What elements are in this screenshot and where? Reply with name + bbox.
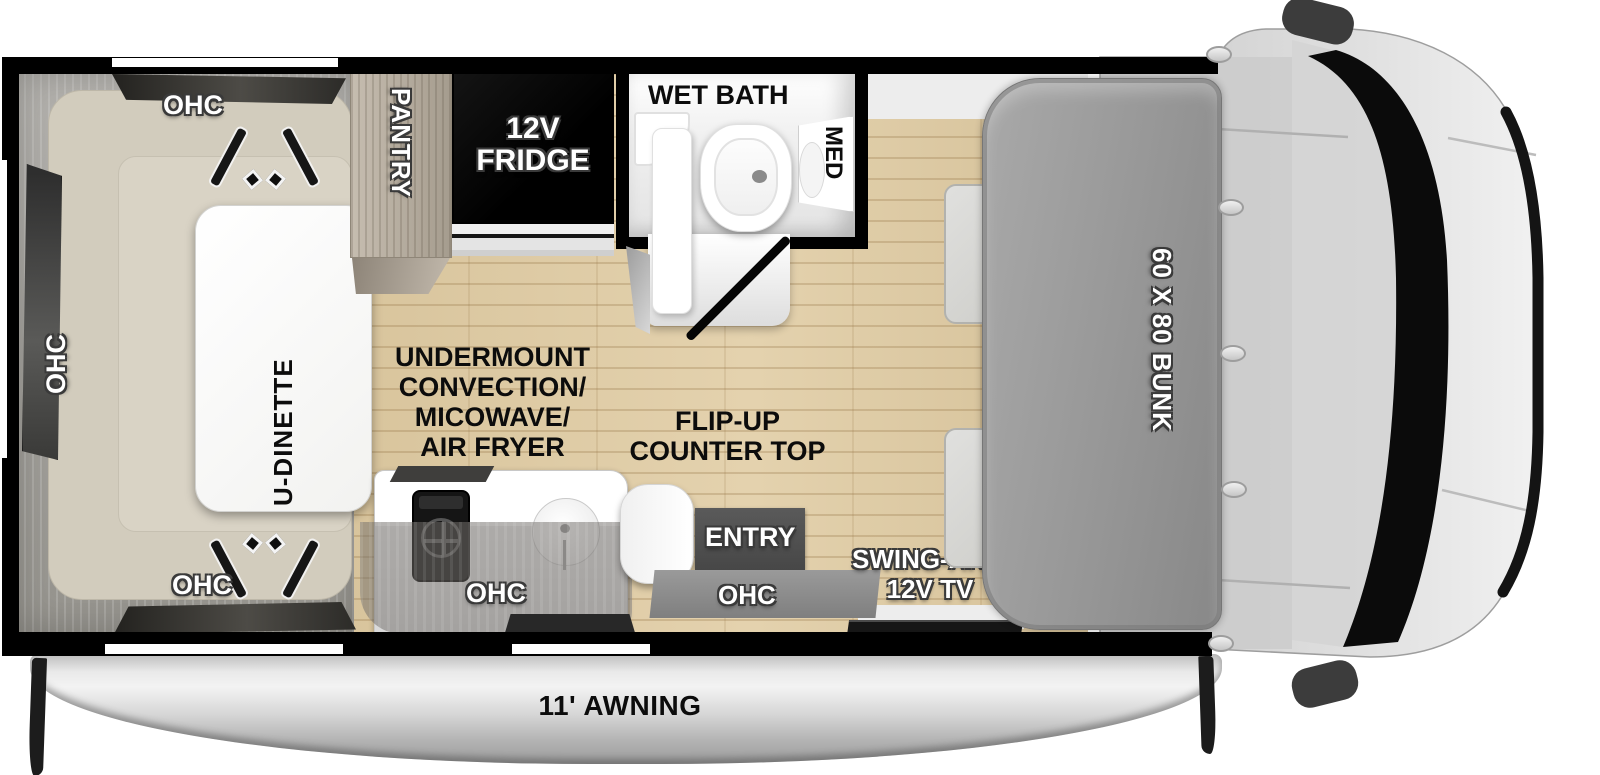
- ohc-label-kitchen: OHC: [466, 578, 526, 609]
- flip-up-label-line1: FLIP-UP: [600, 406, 855, 437]
- hinge-knob-icon: [1206, 46, 1232, 63]
- rv-floorplan: 11' AWNING U-DINETTE OHC: [0, 0, 1600, 775]
- shower-door-panel: [652, 128, 692, 314]
- bath-wall-bottom-right: [788, 235, 868, 249]
- dinette-ohc-shade-top: [112, 74, 346, 104]
- bath-wall-right: [855, 57, 868, 249]
- wall-top-window: [112, 58, 338, 67]
- bunk-label: 60 X 80 BUNK: [1146, 248, 1177, 432]
- ohc-label-top: OHC: [163, 90, 223, 121]
- wall-bottom-window-left: [105, 644, 343, 654]
- flip-up-counter: [620, 484, 694, 584]
- ohc-label-left: OHC: [41, 334, 72, 394]
- appliance-label-line4: AIR FRYER: [350, 432, 635, 463]
- side-mirror-bottom-icon: [1288, 657, 1362, 712]
- entry-label: ENTRY: [705, 522, 796, 553]
- ohc-label-entry: OHC: [718, 580, 776, 611]
- wall-bottom-window-right: [512, 644, 650, 654]
- flip-up-label-line2: COUNTER TOP: [600, 436, 855, 467]
- dinette-table-label: U-DINETTE: [268, 358, 299, 506]
- awning-end-cap-left: [28, 658, 47, 775]
- ohc-label-bottom: OHC: [172, 570, 232, 601]
- bunk: [982, 78, 1222, 630]
- awning-label: 11' AWNING: [480, 690, 760, 722]
- fridge-shelf: [452, 224, 614, 256]
- appliance-label-line3: MICOWAVE/: [350, 402, 635, 433]
- hinge-knob-icon: [1218, 199, 1244, 216]
- appliance-label-line1: UNDERMOUNT: [350, 342, 635, 373]
- hinge-knob-icon: [1208, 635, 1234, 652]
- hinge-knob-icon: [1221, 481, 1247, 498]
- bath-wall-left: [616, 57, 629, 249]
- fridge-label-line2: FRIDGE: [452, 144, 614, 178]
- dinette-window: [22, 164, 62, 460]
- dinette-ohc-shade-bottom: [114, 602, 356, 634]
- cooktop-grate: [419, 496, 463, 509]
- toilet-flush-icon: [752, 170, 767, 183]
- bath-title: WET BATH: [648, 80, 788, 111]
- toilet-seat: [714, 138, 778, 216]
- appliance-label-line2: CONVECTION/: [350, 372, 635, 403]
- wall-left-window: [0, 160, 7, 458]
- pantry-label: PANTRY: [385, 88, 416, 198]
- med-label: MED: [819, 126, 847, 179]
- fridge-label-line1: 12V: [452, 112, 614, 146]
- hinge-knob-icon: [1220, 345, 1246, 362]
- backsplash: [390, 466, 495, 482]
